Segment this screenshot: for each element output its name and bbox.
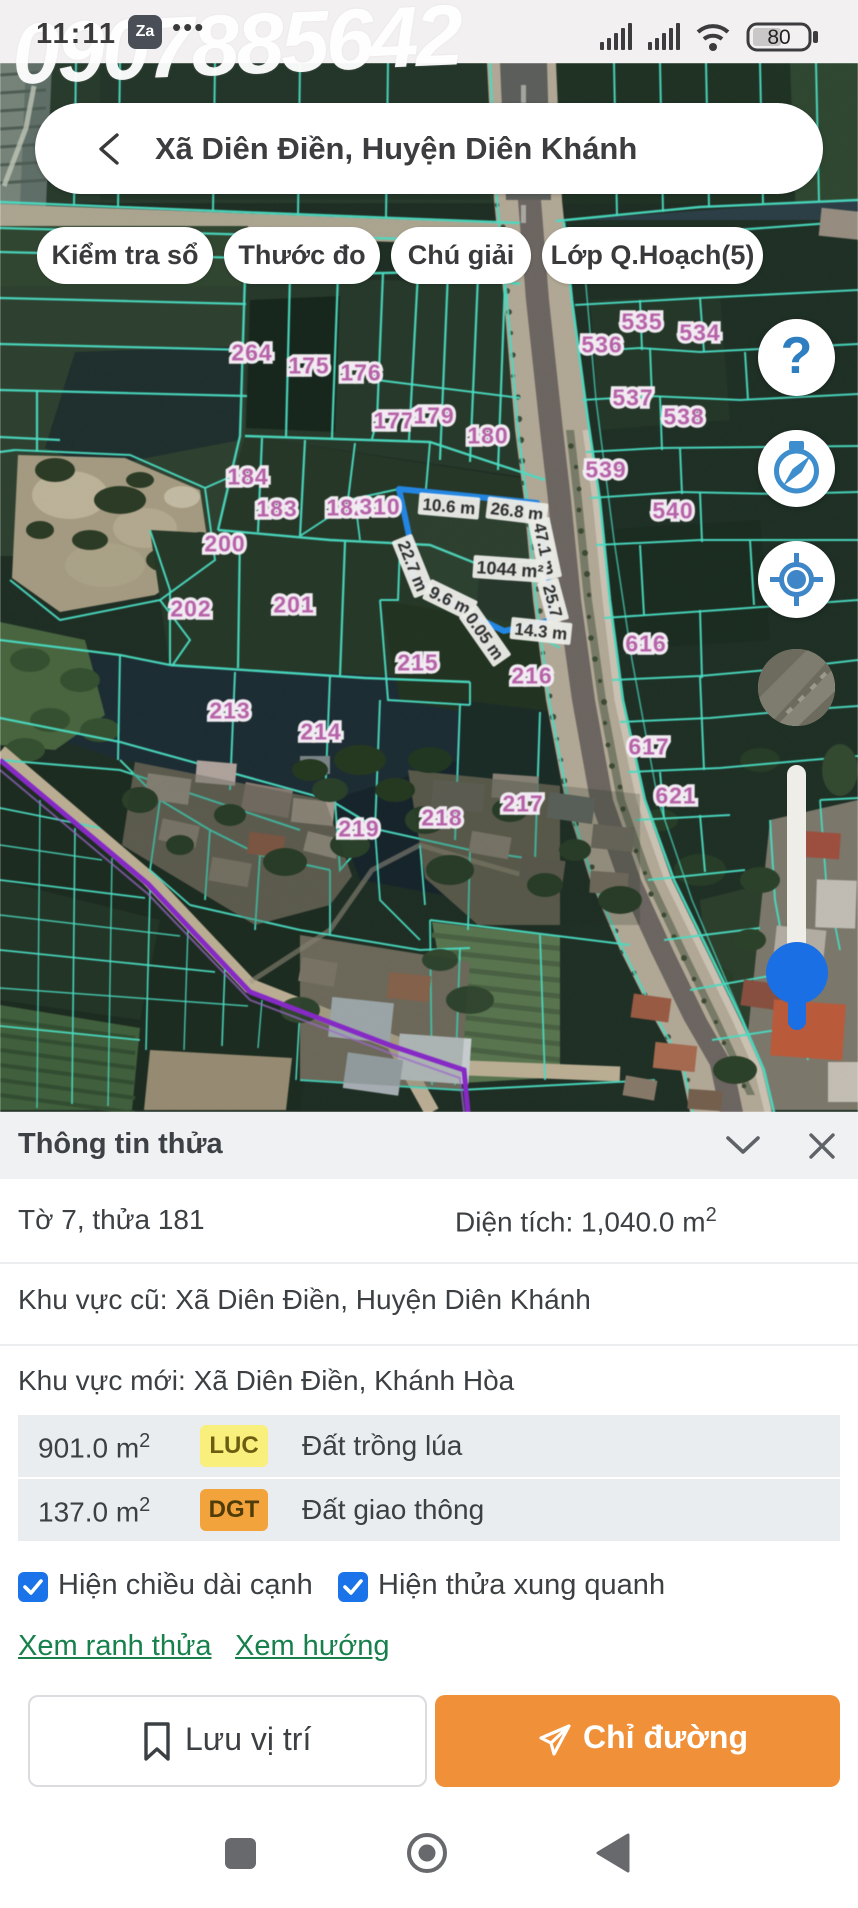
svg-text:80: 80: [767, 26, 790, 49]
